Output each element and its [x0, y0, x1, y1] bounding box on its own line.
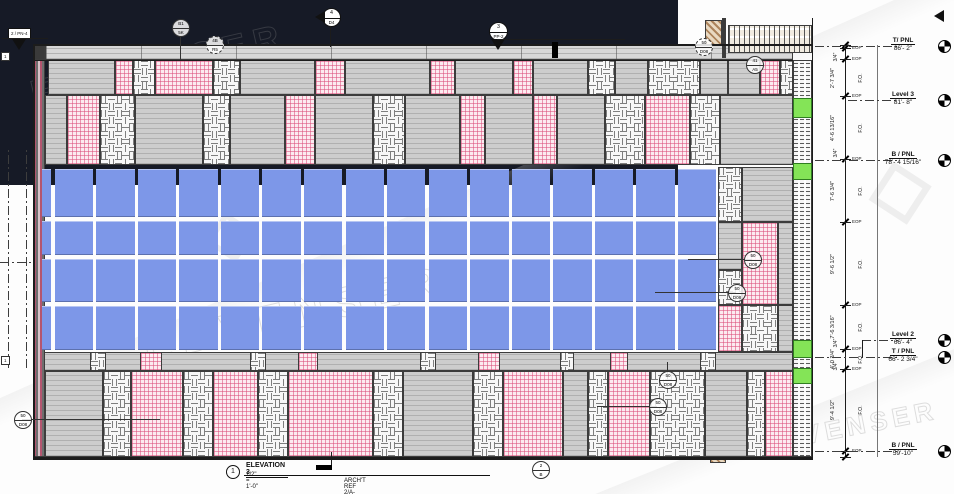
callout-sheet-number: D08: [15, 421, 31, 428]
survey-flag: [552, 42, 558, 58]
facade-panel-basket: [588, 60, 615, 95]
glass-pane: [96, 306, 134, 351]
eop-label: EOP: [852, 56, 862, 61]
glass-pane: [346, 259, 384, 303]
glass-pane: [595, 221, 633, 256]
facade-panel-pink: [533, 95, 557, 165]
level-elevation-value: 81'- 8": [866, 99, 940, 106]
eop-label: EOP: [852, 93, 862, 98]
dimension-value: 9'-6 1/2": [830, 253, 836, 273]
green-highlight-panel: [793, 98, 812, 118]
facade-panel-pink: [285, 95, 315, 165]
dimension-value: 9'-4 1/2": [830, 400, 836, 420]
facade-panel-basket: [373, 371, 403, 457]
glass-pane: [346, 169, 384, 218]
facade-panel-basket: [258, 371, 288, 457]
detail-callout-bubble: B15K: [172, 19, 190, 37]
glass-pane: [553, 306, 591, 351]
building-facade: [0, 0, 954, 185]
eop-label: EOP: [852, 346, 862, 351]
facade-panel-pink: [155, 60, 213, 95]
facade-panel-basket: [780, 60, 793, 95]
glass-pane: [636, 221, 674, 256]
facade-panel-basket: [605, 95, 645, 165]
facade-panel-gray: [720, 95, 793, 165]
facade-panel-basket: [588, 371, 608, 457]
elevation-marker-label: Level 381'- 8": [866, 91, 940, 106]
glass-pane: [429, 306, 467, 351]
callout-leader: [688, 259, 752, 260]
glass-pane: [304, 221, 342, 256]
facade-panel-gray: [455, 60, 513, 95]
glass-pane: [138, 169, 176, 218]
glass-pane: [55, 306, 93, 351]
glass-pane: [678, 306, 716, 351]
detail-callout-bubble: 41A5: [746, 56, 764, 74]
keynote-tag: 1: [1, 356, 10, 365]
scope-line-vertical: [26, 150, 27, 368]
facade-panel-gray: [230, 95, 285, 165]
dimension-small-value: 3/4": [833, 362, 839, 371]
keynote-tag: 1: [1, 52, 10, 61]
dimension-value: 7'-6 3/4": [830, 180, 836, 200]
dimension-tick-bar: [840, 305, 851, 306]
detail-callout-bubble: 50D08: [728, 284, 746, 302]
glass-pane: [55, 169, 93, 218]
glass-pane: [470, 169, 508, 218]
section-marker-arrow-icon: [12, 39, 26, 50]
glass-pane: [387, 221, 425, 256]
facade-panel-basket: [742, 305, 778, 352]
facade-panel-gray: [48, 60, 115, 95]
glass-pane: [470, 221, 508, 256]
dimension-tick-bar: [840, 457, 851, 458]
facade-panel-basket: [420, 352, 436, 371]
view-marker-stem: [330, 26, 331, 47]
glass-pane: [262, 169, 300, 218]
dimension-fo-label: F.O.: [858, 322, 864, 331]
glass-pane: [96, 221, 134, 256]
facade-panel-gray: [778, 222, 793, 305]
facade-panel-gray: [718, 222, 742, 270]
callout-detail-number: 50: [729, 285, 745, 294]
elevation-target-icon: [938, 445, 951, 458]
dimension-small-value: 3/4": [833, 339, 839, 348]
facade-panel-gray: [778, 305, 793, 352]
facade-panel-basket: [373, 95, 405, 165]
building-left-line: [33, 44, 35, 457]
facade-panel-pink: [513, 60, 533, 95]
elevation-marker-label: T/ PNL86'- 2": [866, 37, 940, 52]
facade-panel-pink: [213, 371, 258, 457]
callout-detail-number: 41: [747, 57, 763, 66]
roof-louver-band: [728, 25, 812, 53]
callout-sheet-number: D08: [660, 381, 676, 388]
elevation-marker-label: B / PNL59'-10": [866, 442, 940, 457]
building-bottom-line: [33, 457, 812, 460]
facade-panel-gray: [485, 95, 533, 165]
eop-label: EOP: [852, 219, 862, 224]
glass-pane: [346, 306, 384, 351]
facade-panel-gray: [45, 95, 67, 165]
section-number: 3: [490, 23, 507, 33]
dimension-chain-line: [845, 45, 846, 457]
facade-panel-basket: [747, 371, 765, 457]
facade-panel-pink: [608, 371, 650, 457]
callout-leader: [655, 292, 736, 293]
detail-callout-bubble: 50D08: [659, 371, 677, 389]
facade-panel-basket: [690, 95, 720, 165]
facade-panel-pink: [430, 60, 455, 95]
dimension-outer-line: [877, 45, 878, 457]
facade-panel-gray: [45, 371, 103, 457]
roof-post: [722, 18, 726, 58]
glass-pane: [595, 259, 633, 303]
facade-panel-pink: [460, 95, 485, 165]
glass-pane: [346, 221, 384, 256]
facade-panel-basket: [560, 352, 574, 371]
glass-pane: [179, 169, 217, 218]
callout-detail-number: 50: [15, 412, 31, 421]
dimension-tick-bar: [840, 369, 851, 370]
dimension-fo-label: F.O.: [858, 405, 864, 414]
callout-detail-number: 50: [650, 399, 666, 408]
level-name: Level 3: [890, 91, 916, 99]
section-marker-bar: [497, 39, 625, 40]
elevation-target-icon: [938, 334, 951, 347]
glass-pane: [304, 259, 342, 303]
facade-panel-pink: [115, 60, 133, 95]
glass-pane: [553, 221, 591, 256]
facade-panel-basket: [100, 95, 135, 165]
elevation-marker-label: T / PNL66'- 2 3/4": [866, 348, 940, 363]
glass-pane: [429, 221, 467, 256]
glass-pane: [387, 259, 425, 303]
dimension-small-value: 3/4": [833, 53, 839, 62]
level-elevation-value: 66'- 2 3/4": [866, 356, 940, 363]
glass-pane: [429, 259, 467, 303]
glass-pane: [42, 169, 52, 218]
facade-panel-gray: [403, 371, 473, 457]
glass-pane: [138, 306, 176, 351]
glass-pane: [179, 259, 217, 303]
facade-panel-pink: [765, 371, 793, 457]
level-elevation-value: 66'- 4": [866, 339, 940, 346]
dimension-fo-label: F.O.: [858, 259, 864, 268]
facade-panel-basket: [213, 60, 240, 95]
elevation-drawing-canvas: EDVENSER EDVENSER EDVENSER ◇ ◇ EOPEOPEOP…: [0, 0, 954, 494]
detail-callout-bubble: 50D08: [14, 411, 32, 429]
callout-sheet-number: D08: [729, 294, 745, 301]
detail-callout-bubble: 4BR5: [206, 36, 224, 54]
match-line-mark: [316, 465, 332, 470]
glass-pane: [42, 306, 52, 351]
facade-panel-pink: [718, 305, 742, 352]
facade-panel-pink: [131, 371, 183, 457]
facade-panel-basket: [90, 352, 106, 371]
level-name: B / PNL: [889, 151, 916, 159]
facade-panel-gray: [345, 60, 430, 95]
callout-sheet-number: D08: [745, 261, 761, 268]
glass-pane: [221, 221, 259, 256]
facade-panel-basket: [133, 60, 155, 95]
detail-callout-bubble: 50D08: [744, 251, 762, 269]
elevation-target-icon: [938, 351, 951, 364]
green-highlight-panel: [793, 340, 812, 358]
detail-callout-bubble: 50D08: [649, 398, 667, 416]
facade-panel-basket: [718, 167, 742, 222]
dimension-fo-label: F.O.: [858, 73, 864, 82]
facade-panel-pink: [315, 60, 345, 95]
glass-pane: [636, 259, 674, 303]
glass-pane: [262, 306, 300, 351]
callout-sheet-number: D08: [696, 48, 712, 55]
facade-panel-basket: [473, 371, 503, 457]
glass-pane: [221, 169, 259, 218]
glass-pane: [512, 221, 550, 256]
facade-panel-pink: [298, 352, 318, 371]
glass-pane: [678, 259, 716, 303]
glass-pane: [179, 221, 217, 256]
edge-tick-strip: [793, 60, 812, 457]
glass-pane: [262, 221, 300, 256]
glass-pane: [387, 169, 425, 218]
glass-pane: [553, 259, 591, 303]
level-name: Level 2: [890, 331, 916, 339]
dimension-value: 4'-6 13/16": [830, 114, 836, 140]
elevation-target-icon: [938, 40, 951, 53]
facade-panel-pink: [288, 371, 373, 457]
detail-callout-bubble: 2B: [532, 461, 550, 479]
detail-callout-bubble: 50D08: [695, 38, 713, 56]
glass-pane: [55, 259, 93, 303]
glass-pane: [595, 306, 633, 351]
callout-leader: [22, 419, 160, 420]
glass-pane: [42, 221, 52, 256]
detail-number-bubble: 1: [226, 465, 240, 479]
callout-detail-number: 50: [696, 39, 712, 48]
view-reference: ARCH'T REF 2/A-4.02: [344, 478, 366, 494]
glass-pane: [96, 259, 134, 303]
section-direction-arrow-icon: [491, 39, 505, 50]
glass-pane: [636, 169, 674, 218]
glass-pane: [512, 259, 550, 303]
view-sheet: D4: [323, 19, 340, 26]
elevation-marker-label: B / PNL78'- 4 15/16": [866, 151, 940, 166]
facade-panel-basket: [183, 371, 213, 457]
dimension-small-value: 3/4": [833, 149, 839, 158]
dimension-value: 2'-7 3/4": [830, 68, 836, 88]
title-underline: [244, 475, 490, 476]
facade-panel-basket: [203, 95, 230, 165]
facade-panel-gray: [563, 371, 588, 457]
facade-panel-basket: [250, 352, 266, 371]
level-elevation-value: 59'-10": [866, 450, 940, 457]
glass-pane: [470, 259, 508, 303]
glass-pane: [678, 221, 716, 256]
callout-sheet-number: D08: [650, 408, 666, 415]
glass-pane: [179, 306, 217, 351]
glass-pane: [96, 169, 134, 218]
section-marker-bar: [2, 38, 48, 39]
level-elevation-value: 86'- 2": [866, 45, 940, 52]
level-name: T/ PNL: [891, 37, 916, 45]
callout-detail-number: 50: [745, 252, 761, 261]
glass-pane: [636, 306, 674, 351]
corner-arrow-icon: [934, 10, 944, 22]
callout-sheet-number: 5K: [173, 29, 189, 36]
callout-sheet-number: A5: [747, 66, 763, 73]
callout-leader: [597, 406, 657, 407]
building-right-line: [812, 18, 813, 460]
parapet-bottom-line: [33, 60, 793, 61]
facade-panel-gray: [315, 95, 373, 165]
facade-panel-gray: [615, 60, 648, 95]
parapet-coping: [45, 45, 793, 60]
glass-pane: [221, 306, 259, 351]
glass-pane: [678, 169, 716, 218]
facade-panel-gray: [700, 60, 728, 95]
glass-pane: [553, 169, 591, 218]
level-elevation-value: 78'- 4 15/16": [866, 159, 940, 166]
glass-pane: [42, 259, 52, 303]
dimension-value: 7'-6 3/16": [830, 315, 836, 338]
scope-line-horizontal: [0, 262, 33, 263]
facade-panel-pink: [645, 95, 690, 165]
dimension-tick-bar: [840, 349, 851, 350]
elevation-target-icon: [938, 94, 951, 107]
glass-pane: [138, 259, 176, 303]
dimension-tick-bar: [840, 222, 851, 223]
facade-panel-gray: [405, 95, 460, 165]
facade-panel-basket: [103, 371, 131, 457]
view-number: 4: [323, 9, 340, 19]
eop-label: EOP: [852, 302, 862, 307]
callout-sheet-number: R5: [207, 46, 223, 53]
glass-pane: [304, 169, 342, 218]
glass-pane: [429, 169, 467, 218]
callout-detail-number: 2: [533, 462, 549, 471]
facade-panel-gray: [742, 167, 793, 222]
elevation-target-icon: [938, 154, 951, 167]
level-name: B / PNL: [889, 442, 916, 450]
dimension-fo-label: F.O.: [858, 354, 864, 363]
glass-pane: [55, 221, 93, 256]
match-line-stem: [331, 452, 332, 465]
dimension-fo-label: F.O.: [858, 186, 864, 195]
glass-pane: [221, 259, 259, 303]
glass-pane: [512, 306, 550, 351]
facade-panel-gray: [557, 95, 605, 165]
facade-panel-pink: [478, 352, 500, 371]
facade-panel-gray: [533, 60, 588, 95]
glass-pane: [138, 221, 176, 256]
facade-panel-basket: [700, 352, 716, 371]
glass-pane: [262, 259, 300, 303]
facade-panel-pink: [610, 352, 628, 371]
facade-panel-pink: [140, 352, 162, 371]
level-name: T / PNL: [890, 348, 916, 356]
level-step-line: [862, 340, 863, 357]
callout-detail-number: B1: [173, 20, 189, 29]
callout-detail-number: 4B: [207, 37, 223, 46]
facade-panel-basket: [648, 60, 700, 95]
elevation-marker-label: Level 266'- 4": [866, 331, 940, 346]
glass-pane: [387, 306, 425, 351]
dimension-fo-label: F.O.: [858, 123, 864, 132]
scope-line-vertical: [8, 150, 9, 368]
facade-panel-gray: [240, 60, 315, 95]
dimension-tick-bar: [840, 96, 851, 97]
dimension-tick-bar: [840, 59, 851, 60]
facade-panel-pink: [503, 371, 563, 457]
facade-panel-gray: [135, 95, 203, 165]
facade-panel-pink: [67, 95, 100, 165]
glass-pane: [470, 306, 508, 351]
facade-panel-gray: [705, 371, 747, 457]
callout-sheet-number: B: [533, 471, 549, 478]
view-direction-arrow-icon: [315, 11, 325, 23]
green-highlight-panel: [793, 368, 812, 384]
glass-pane: [304, 306, 342, 351]
eop-label: EOP: [852, 366, 862, 371]
glass-pane: [595, 169, 633, 218]
green-highlight-panel: [793, 163, 812, 180]
callout-detail-number: 50: [660, 372, 676, 381]
glass-pane: [512, 169, 550, 218]
